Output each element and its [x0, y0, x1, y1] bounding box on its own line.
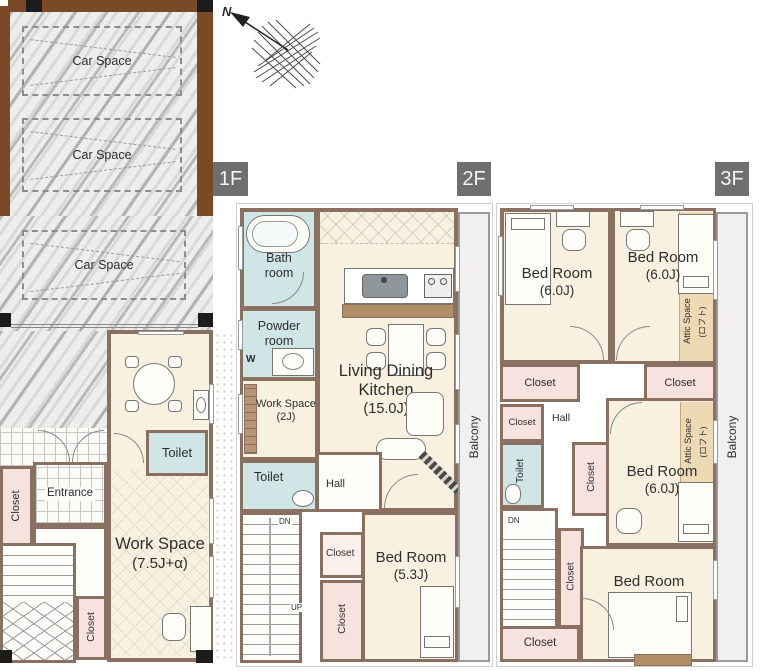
dining-chair — [426, 328, 446, 346]
window — [713, 560, 718, 600]
car-space-1-label: Car Space — [72, 54, 131, 69]
chair — [168, 400, 182, 412]
floor-badge-2f: 2F — [457, 162, 491, 196]
bed3-size: (6.0J) — [645, 481, 680, 497]
workspace-1f-size: (7.5J+α) — [132, 555, 188, 573]
toilet-bowl — [505, 484, 521, 504]
floor-badge-1f: 1F — [213, 162, 248, 196]
car-space-1: Car Space — [22, 26, 182, 96]
floor-plan-canvas: Car Space Car Space Car Space N 1F 2F — [0, 0, 774, 671]
kitchen-faucet — [381, 277, 387, 283]
label-workspace-1f: Work Space (7.5J+α) — [110, 532, 210, 576]
floor-badge-3f-label: 3F — [720, 168, 743, 191]
closet-stairs-3f-label: Closet — [566, 552, 577, 602]
window — [209, 384, 214, 424]
dn-2f-label: DN — [278, 517, 292, 526]
washer-label: W — [246, 354, 255, 365]
toilet-2f-label: Toilet — [254, 470, 283, 484]
chair — [125, 356, 139, 368]
floor-badge-2f-label: 2F — [462, 168, 485, 191]
toilet-bowl — [292, 490, 314, 507]
gate-post — [198, 313, 213, 327]
room-3f-closet-small: Closet — [500, 404, 544, 442]
kitchen-base — [342, 304, 454, 318]
window — [530, 205, 574, 210]
bed-pillow — [683, 524, 709, 534]
balcony-door-3f — [634, 654, 692, 666]
powder-sink-bowl — [282, 353, 304, 370]
entrance-label: Entrance — [45, 487, 95, 501]
toilet-1f-label: Toilet — [162, 445, 192, 460]
desk-chair — [562, 229, 586, 251]
label-bed1-3f: Bed Room (6.0J) — [514, 264, 600, 300]
room-1f-entrance: Entrance — [33, 462, 107, 526]
bed-pillow — [676, 596, 688, 622]
balcony-2f-label: Balcony — [467, 405, 481, 469]
closet-entry-1f-label: Closet — [10, 481, 22, 531]
desk-chair — [162, 613, 186, 641]
window — [498, 236, 503, 296]
car-space-2: Car Space — [22, 118, 182, 192]
bed-pillow — [511, 218, 545, 230]
garage-wall-left — [0, 6, 10, 217]
garden-gravel — [214, 332, 234, 662]
bath-2f-line1: Bath — [266, 251, 292, 266]
closet-stairs-1f-label: Closet — [85, 603, 97, 651]
attic2-sub-label: (ロフト) — [697, 420, 709, 464]
bed4-name: Bed Room — [614, 573, 685, 591]
closet-bed-2f-label: Closet — [336, 593, 348, 645]
bed3-name: Bed Room — [627, 463, 698, 481]
window — [455, 424, 460, 464]
ldk-void-hatch — [320, 212, 454, 244]
room-3f-closet-tl: Closet — [500, 364, 580, 402]
bed-pillow — [424, 636, 450, 648]
stove-burner — [428, 278, 435, 285]
gate-line — [11, 324, 198, 328]
garage-post — [26, 0, 42, 12]
car-space-3-label: Car Space — [74, 258, 133, 273]
closet-mid-label: Closet — [585, 451, 597, 503]
closet-tl-label: Closet — [524, 377, 555, 390]
workspace-1f-name: Work Space — [115, 535, 205, 554]
sofa — [406, 392, 444, 436]
room-1f-toilet: Toilet — [146, 430, 208, 476]
gate-post — [0, 313, 11, 327]
kitchen-stove — [424, 274, 452, 298]
stairs-1f-treads — [3, 546, 73, 602]
balcony-3f-label: Balcony — [725, 405, 739, 469]
window — [238, 320, 243, 350]
desk — [556, 211, 590, 227]
closet-tr-label: Closet — [664, 377, 695, 390]
round-table — [133, 363, 175, 405]
hall-3f-label: Hall — [552, 412, 570, 424]
chair — [168, 356, 182, 368]
window — [713, 240, 718, 300]
label-powder-2f: Powder room — [244, 318, 314, 350]
desk-chair — [616, 508, 642, 534]
powder-2f-line1: Powder — [258, 319, 300, 334]
window — [713, 420, 718, 464]
desk — [190, 606, 212, 652]
bedroom-2f-name: Bed Room — [376, 549, 447, 567]
stove-burner — [440, 278, 447, 285]
compass-rose — [218, 2, 322, 90]
powder-2f-line2: room — [265, 334, 293, 349]
window — [455, 334, 460, 390]
garage-wall-right — [197, 6, 213, 219]
hall-2f-label: Hall — [326, 478, 345, 490]
stairs-2f-rail — [269, 518, 271, 656]
closet-hall-2f-label: Closet — [326, 548, 354, 559]
window — [238, 226, 243, 270]
compass-north-label: N — [222, 4, 231, 19]
attic1-sub-label: (ロフト) — [696, 300, 708, 344]
window — [238, 394, 243, 434]
workspace-2f-size: (2J) — [277, 411, 296, 424]
stairs-3f-treads — [503, 530, 555, 630]
room-3f-closet-bottom: Closet — [500, 626, 580, 662]
bathtub-inner — [252, 221, 298, 247]
bedroom-2f-size: (5.3J) — [394, 567, 429, 583]
window — [138, 331, 184, 335]
floor-badge-3f: 3F — [715, 162, 749, 196]
floor-badge-1f-label: 1F — [219, 168, 242, 191]
up-2f-label: UP — [290, 603, 303, 612]
bed2-name: Bed Room — [628, 249, 699, 267]
label-bed2-3f: Bed Room (6.0J) — [620, 248, 706, 284]
driveway-side — [0, 331, 107, 430]
ldk-line3: (15.0J) — [363, 401, 408, 418]
label-workspace-2f: Work Space (2J) — [256, 396, 316, 426]
desk — [620, 211, 654, 227]
dining-chair — [366, 328, 386, 346]
window — [455, 246, 460, 292]
car-space-2-label: Car Space — [72, 148, 131, 163]
basin-bowl — [196, 397, 206, 413]
bed2-size: (6.0J) — [646, 267, 681, 283]
dn-3f-label: DN — [508, 516, 520, 525]
bed1-name: Bed Room — [522, 265, 593, 283]
chair — [125, 400, 139, 412]
garage-post — [197, 0, 213, 12]
stairs-1f-fan — [3, 602, 73, 660]
window — [455, 556, 460, 608]
attic1-label: Attic Space — [682, 290, 692, 352]
stairs-2f-treads — [243, 515, 299, 660]
house-post — [196, 650, 213, 663]
closet-small-label: Closet — [509, 417, 536, 428]
room-3f-closet-tr: Closet — [644, 364, 716, 402]
window — [640, 205, 684, 210]
closet-bottom-label: Closet — [524, 637, 557, 651]
house-post — [0, 650, 12, 663]
label-bedroom-2f: Bed Room (5.3J) — [368, 548, 454, 584]
workspace-2f-name: Work Space — [256, 398, 316, 411]
ldk-line1: Living Dining — [339, 362, 433, 381]
bed1-size: (6.0J) — [540, 283, 575, 299]
